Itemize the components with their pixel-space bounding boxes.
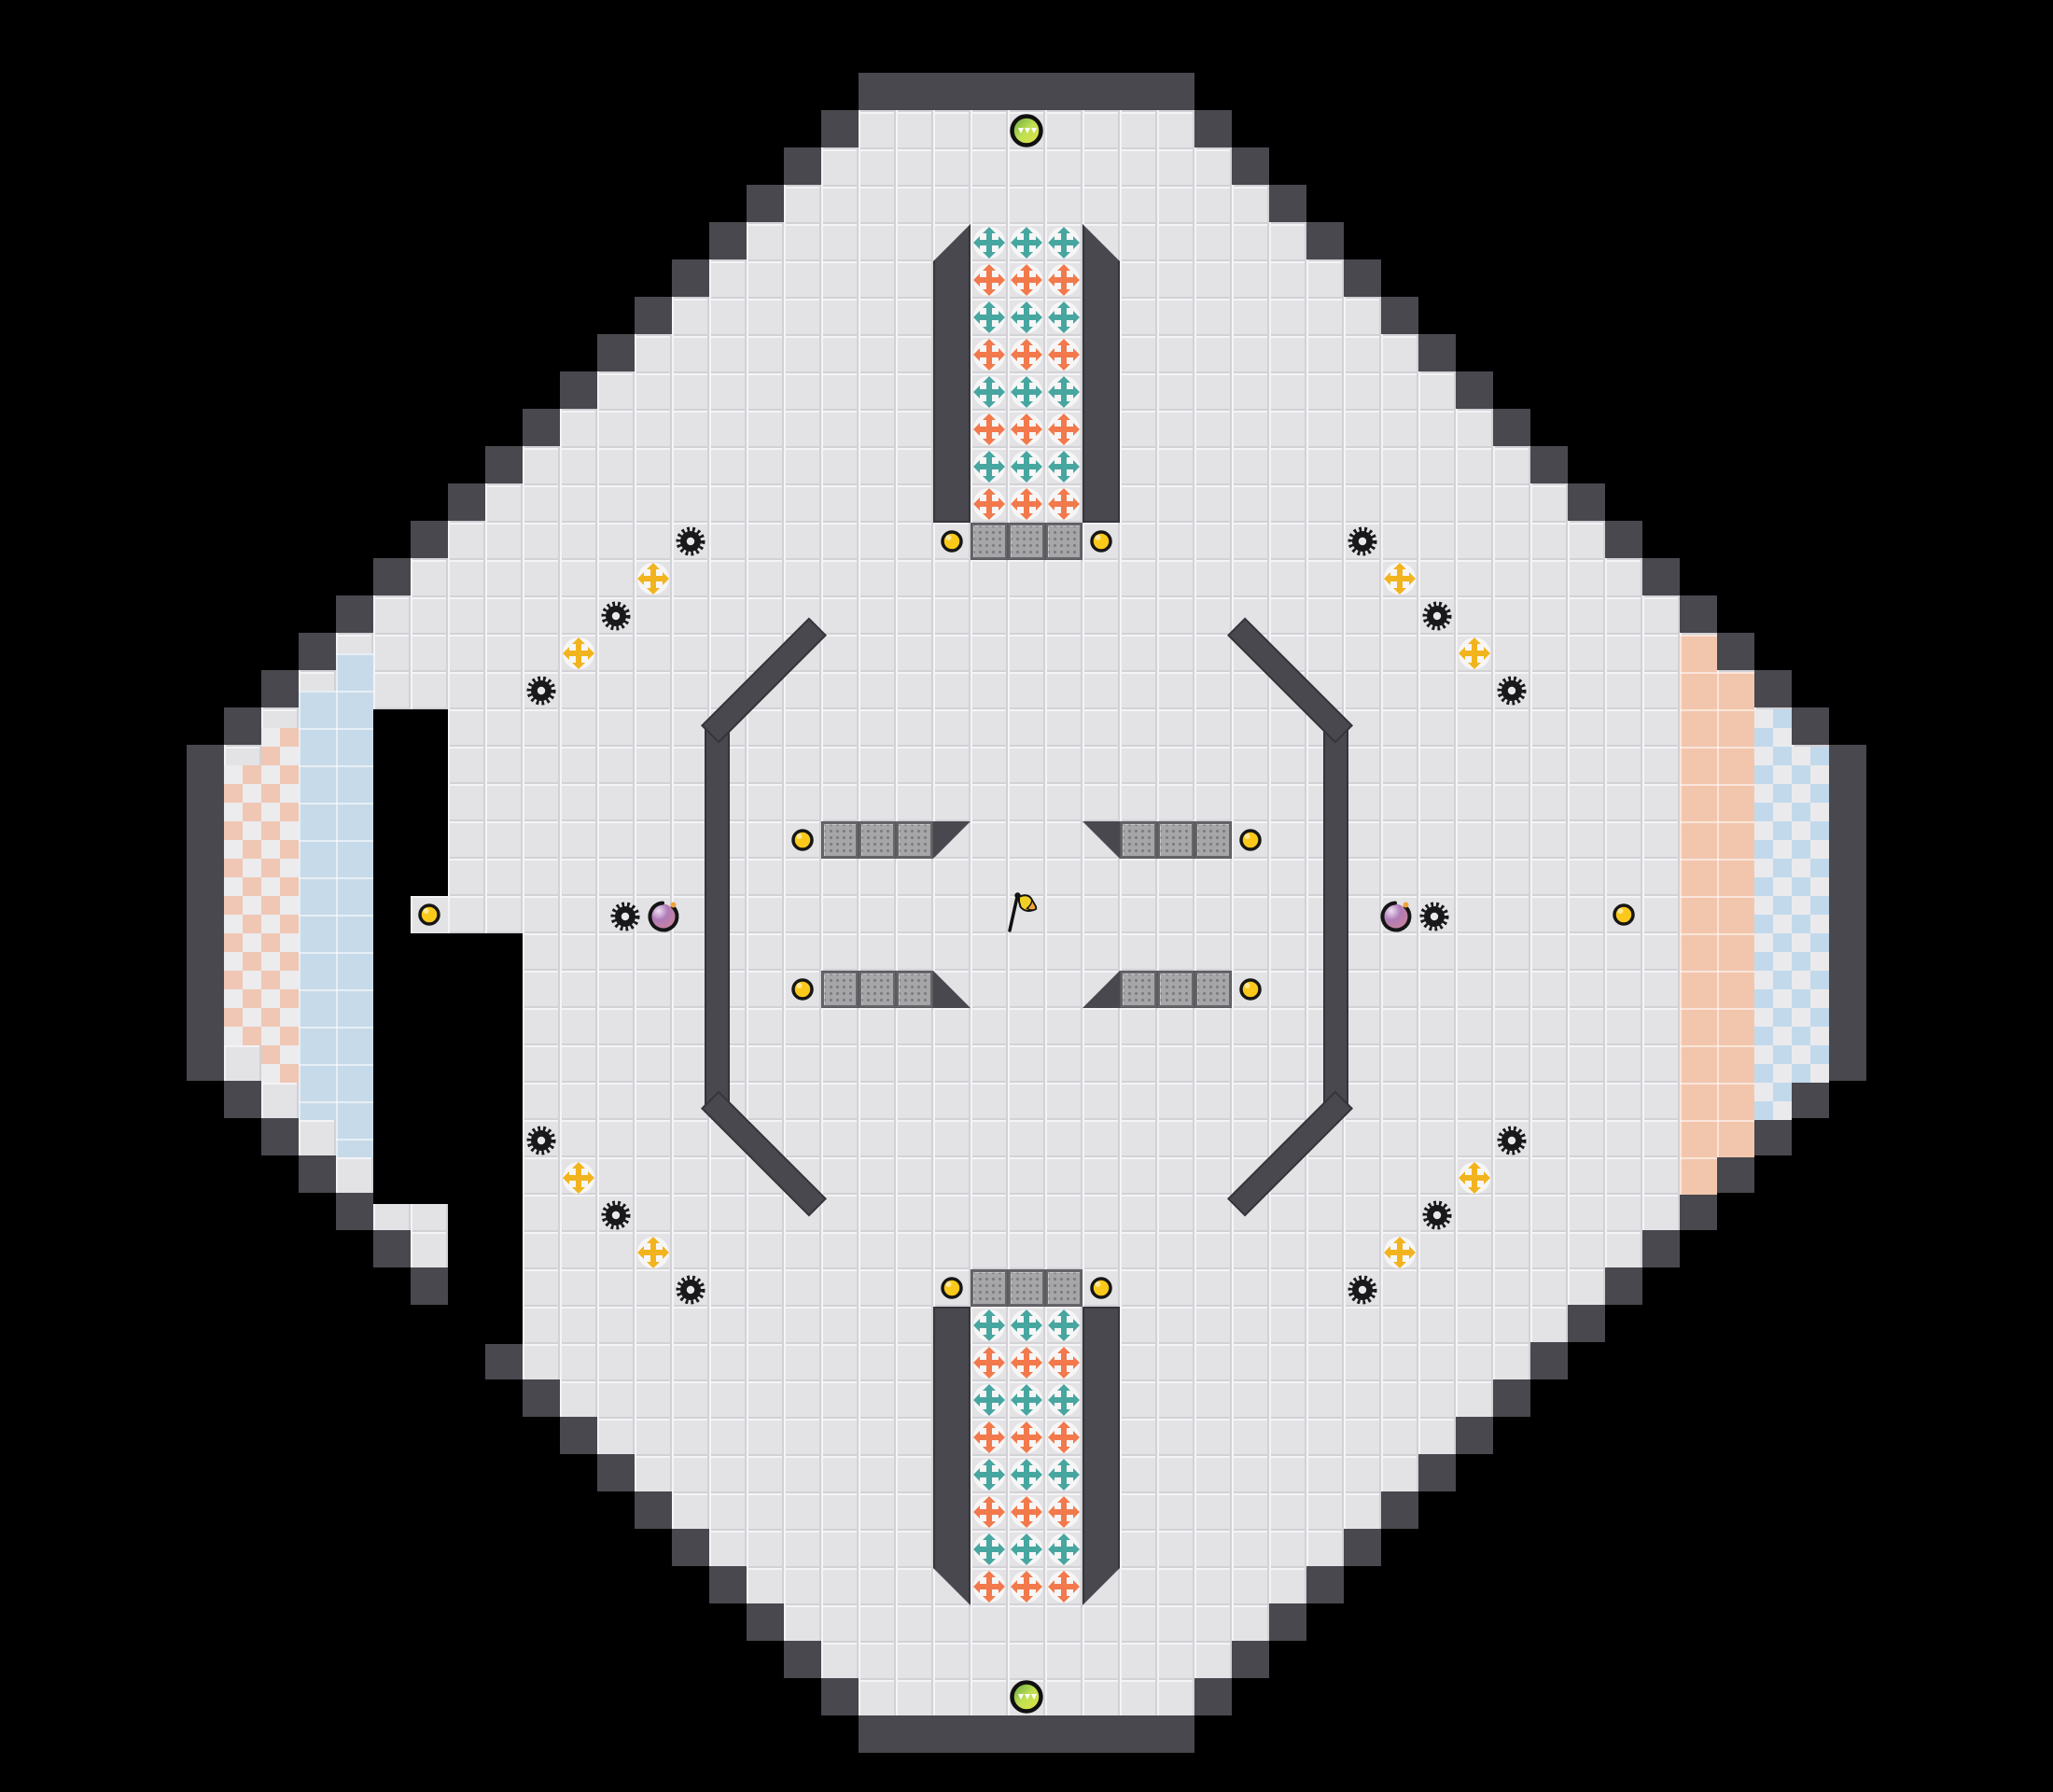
team-boost-orange-tile[interactable] — [1008, 1568, 1045, 1605]
team-boost-orange-tile[interactable] — [1008, 485, 1045, 523]
gate-0 — [971, 523, 1082, 560]
team-boost-orange-tile[interactable] — [1045, 1419, 1082, 1456]
corridor-wall-1 — [1082, 224, 1120, 523]
team-boost-teal-tile[interactable] — [971, 1456, 1008, 1493]
team-boost-orange-tile[interactable] — [1008, 261, 1045, 299]
team-boost-teal-tile[interactable] — [971, 299, 1008, 336]
team-boost-teal-tile[interactable] — [1045, 1381, 1082, 1419]
boost-pad-yellow[interactable] — [1381, 1234, 1418, 1271]
powerup-orb[interactable] — [644, 898, 681, 935]
team-boost-teal-tile[interactable] — [1008, 1456, 1045, 1493]
team-boost-teal-tile[interactable] — [1045, 448, 1082, 485]
spike-hazard — [672, 523, 709, 560]
team-boost-teal-tile[interactable] — [1008, 224, 1045, 261]
neutral-flag[interactable] — [1001, 889, 1042, 933]
spike-hazard — [1418, 1197, 1456, 1234]
spike-hazard — [607, 898, 644, 935]
team-boost-orange-tile[interactable] — [971, 1344, 1008, 1381]
team-boost-orange-tile[interactable] — [971, 261, 1008, 299]
team-boost-teal-tile[interactable] — [971, 373, 1008, 411]
gate-tile — [822, 972, 858, 1007]
team-boost-teal-tile[interactable] — [971, 224, 1008, 261]
gate-2 — [821, 821, 933, 859]
gate-tile — [859, 822, 895, 858]
game-map — [0, 0, 2053, 1792]
gate-tile — [1121, 822, 1156, 858]
team-boost-orange-tile[interactable] — [1045, 336, 1082, 373]
portal[interactable] — [1006, 1676, 1047, 1717]
right-endzone-checker-blue-col1 — [1792, 747, 1829, 1083]
gate-button[interactable] — [784, 821, 821, 859]
team-boost-orange-tile[interactable] — [1008, 336, 1045, 373]
team-boost-teal-tile[interactable] — [1008, 1531, 1045, 1568]
boost-pad-yellow[interactable] — [1381, 560, 1418, 597]
center-wall-3 — [1323, 727, 1348, 1107]
team-boost-teal-tile[interactable] — [1045, 224, 1082, 261]
boost-pad-yellow[interactable] — [635, 1234, 672, 1271]
team-boost-orange-tile[interactable] — [1045, 1568, 1082, 1605]
spike-hazard — [523, 672, 560, 709]
portal[interactable] — [1006, 110, 1047, 151]
powerup-orb[interactable] — [1376, 898, 1414, 935]
left-endzone-checker-pink-col0 — [224, 765, 261, 1045]
gate-tile — [971, 524, 1007, 559]
gate-button[interactable] — [1232, 971, 1269, 1008]
gate-tile — [1009, 1270, 1044, 1306]
gate-button[interactable] — [784, 971, 821, 1008]
void-pit-0 — [373, 709, 448, 1204]
team-boost-orange-tile[interactable] — [971, 1419, 1008, 1456]
gate-button[interactable] — [1605, 896, 1642, 933]
spike-hazard — [597, 597, 635, 635]
team-boost-teal-tile[interactable] — [971, 448, 1008, 485]
gate-button[interactable] — [933, 1269, 971, 1307]
spike-hazard — [597, 1197, 635, 1234]
gate-button[interactable] — [1082, 1269, 1120, 1307]
gate-tile — [897, 972, 932, 1007]
spike-hazard — [1344, 523, 1381, 560]
team-boost-orange-tile[interactable] — [1045, 1493, 1082, 1531]
team-boost-teal-tile[interactable] — [1008, 299, 1045, 336]
gate-tile — [1195, 972, 1231, 1007]
boost-pad-yellow[interactable] — [635, 560, 672, 597]
spike-hazard — [1493, 1122, 1530, 1159]
team-boost-teal-tile[interactable] — [1008, 448, 1045, 485]
gate-tile — [1158, 972, 1194, 1007]
right-salmon-zone-col0 — [1680, 635, 1717, 1195]
team-boost-orange-tile[interactable] — [971, 1568, 1008, 1605]
team-boost-orange-tile[interactable] — [1008, 1419, 1045, 1456]
gate-button[interactable] — [933, 523, 971, 560]
team-boost-teal-tile[interactable] — [1045, 1456, 1082, 1493]
gate-button[interactable] — [1232, 821, 1269, 859]
gate-tile — [1158, 822, 1194, 858]
gate-button[interactable] — [1082, 523, 1120, 560]
team-boost-orange-tile[interactable] — [1008, 411, 1045, 448]
boost-pad-yellow[interactable] — [1456, 635, 1493, 672]
gate-tile — [859, 972, 895, 1007]
gate-tile — [1121, 972, 1156, 1007]
gate-tile — [822, 822, 858, 858]
center-wall-0 — [705, 727, 730, 1107]
team-boost-orange-tile[interactable] — [1045, 1344, 1082, 1381]
void-pit-1 — [448, 933, 523, 1344]
team-boost-teal-tile[interactable] — [971, 1307, 1008, 1344]
boost-pad-yellow[interactable] — [560, 635, 597, 672]
corridor-wall-2 — [933, 1307, 971, 1605]
team-boost-orange-tile[interactable] — [971, 1493, 1008, 1531]
team-boost-teal-tile[interactable] — [1045, 373, 1082, 411]
team-boost-orange-tile[interactable] — [1045, 411, 1082, 448]
team-boost-teal-tile[interactable] — [1008, 373, 1045, 411]
gate-4 — [821, 971, 933, 1008]
left-endzone-checker-pink-col1 — [261, 728, 299, 1083]
gate-button[interactable] — [411, 896, 448, 933]
spike-hazard — [1493, 672, 1530, 709]
spike-hazard — [1344, 1271, 1381, 1309]
gate-tile — [897, 822, 932, 858]
left-blue-zone-col0 — [299, 691, 336, 1120]
gate-3 — [1120, 821, 1232, 859]
team-boost-orange-tile[interactable] — [971, 411, 1008, 448]
boost-pad-yellow[interactable] — [560, 1159, 597, 1197]
team-boost-orange-tile[interactable] — [1008, 1344, 1045, 1381]
team-boost-teal-tile[interactable] — [971, 1531, 1008, 1568]
spike-hazard — [672, 1271, 709, 1309]
right-endzone-checker-blue-col0 — [1754, 709, 1792, 1120]
gate-tile — [1046, 524, 1082, 559]
team-boost-teal-tile[interactable] — [971, 1381, 1008, 1419]
spike-hazard — [1418, 597, 1456, 635]
team-boost-orange-tile[interactable] — [1045, 485, 1082, 523]
gate-tile — [1009, 524, 1044, 559]
right-salmon-zone-col1 — [1717, 672, 1754, 1157]
gate-tile — [1195, 822, 1231, 858]
team-boost-teal-tile[interactable] — [1008, 1307, 1045, 1344]
team-boost-orange-tile[interactable] — [1008, 1493, 1045, 1531]
gate-5 — [1120, 971, 1232, 1008]
corridor-wall-0 — [933, 224, 971, 523]
spike-hazard — [1416, 898, 1453, 935]
left-blue-zone-col1 — [336, 653, 373, 1157]
gate-tile — [971, 1270, 1007, 1306]
team-boost-orange-tile[interactable] — [1045, 261, 1082, 299]
game-viewport[interactable] — [0, 0, 2053, 1792]
boost-pad-yellow[interactable] — [1456, 1159, 1493, 1197]
corridor-wall-3 — [1082, 1307, 1120, 1605]
gate-tile — [1046, 1270, 1082, 1306]
team-boost-teal-tile[interactable] — [1045, 1531, 1082, 1568]
team-boost-teal-tile[interactable] — [1008, 1381, 1045, 1419]
team-boost-orange-tile[interactable] — [971, 485, 1008, 523]
team-boost-orange-tile[interactable] — [971, 336, 1008, 373]
gate-1 — [971, 1269, 1082, 1307]
team-boost-teal-tile[interactable] — [1045, 1307, 1082, 1344]
team-boost-teal-tile[interactable] — [1045, 299, 1082, 336]
spike-hazard — [523, 1122, 560, 1159]
